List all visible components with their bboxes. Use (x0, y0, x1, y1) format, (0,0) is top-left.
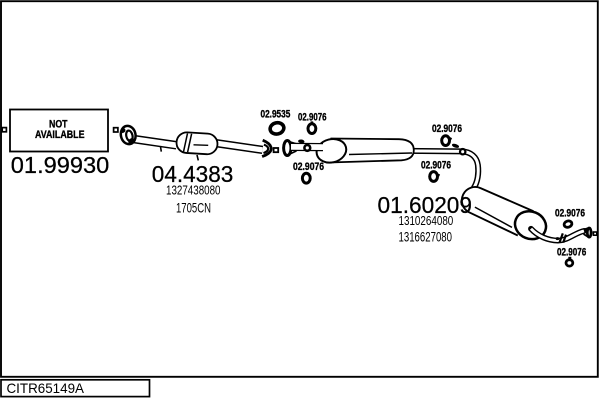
svg-text:02.9535: 02.9535 (261, 109, 291, 121)
svg-text:1327438080: 1327438080 (166, 182, 221, 197)
svg-text:CITR65149A: CITR65149A (7, 380, 85, 396)
svg-text:1705CN: 1705CN (176, 199, 211, 215)
svg-text:02.9076: 02.9076 (555, 208, 585, 220)
svg-text:1316627080: 1316627080 (399, 228, 453, 244)
svg-text:1310264080: 1310264080 (399, 213, 454, 228)
svg-text:02.9076: 02.9076 (421, 160, 451, 172)
svg-text:AVAILABLE: AVAILABLE (35, 129, 85, 141)
svg-text:02.9076: 02.9076 (298, 112, 327, 124)
svg-text:02.9076: 02.9076 (432, 123, 462, 135)
svg-text:01.99930: 01.99930 (11, 152, 110, 178)
svg-text:02.9076: 02.9076 (557, 247, 586, 259)
svg-text:02.9076: 02.9076 (293, 161, 324, 173)
